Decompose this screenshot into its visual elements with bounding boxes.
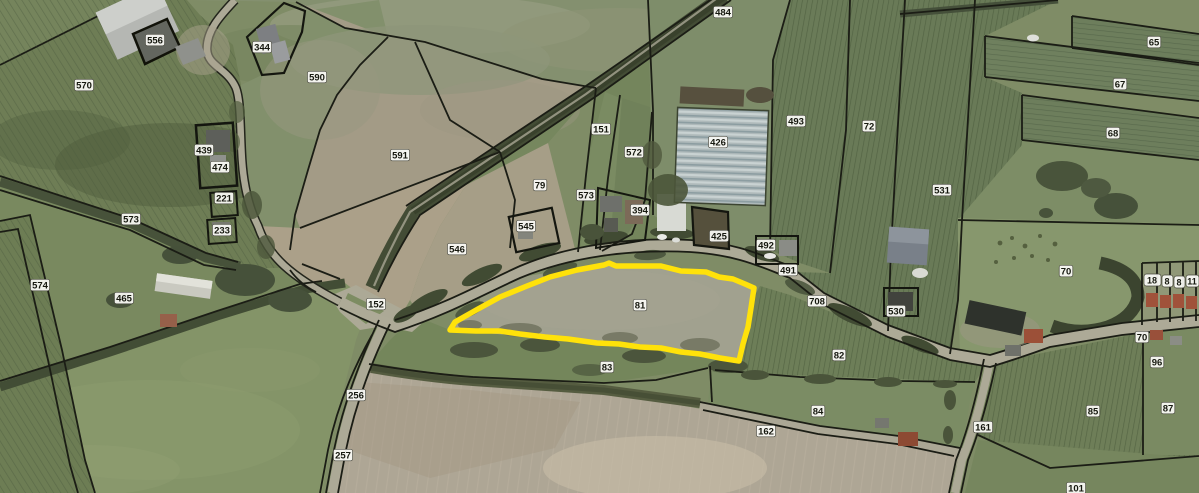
svg-text:465: 465 — [116, 294, 133, 305]
svg-text:101: 101 — [1068, 484, 1085, 493]
svg-text:474: 474 — [212, 163, 229, 174]
svg-text:545: 545 — [518, 222, 535, 233]
svg-text:591: 591 — [392, 151, 409, 162]
svg-text:161: 161 — [975, 423, 992, 434]
svg-text:84: 84 — [813, 407, 824, 418]
svg-text:574: 574 — [32, 281, 49, 292]
svg-text:8: 8 — [1164, 277, 1169, 287]
svg-text:70: 70 — [1137, 333, 1148, 344]
svg-text:152: 152 — [368, 300, 384, 311]
svg-text:85: 85 — [1088, 407, 1099, 418]
svg-text:96: 96 — [1152, 358, 1163, 369]
svg-text:573: 573 — [123, 215, 139, 226]
svg-text:530: 530 — [888, 307, 904, 318]
svg-text:72: 72 — [864, 122, 875, 133]
svg-text:570: 570 — [76, 81, 92, 92]
svg-text:491: 491 — [780, 266, 797, 277]
svg-text:531: 531 — [934, 186, 951, 197]
svg-text:8: 8 — [1176, 278, 1181, 288]
svg-text:79: 79 — [535, 181, 546, 192]
svg-text:590: 590 — [309, 73, 325, 84]
svg-text:344: 344 — [254, 43, 271, 54]
svg-text:81: 81 — [635, 301, 646, 312]
svg-text:65: 65 — [1149, 38, 1160, 49]
svg-text:83: 83 — [602, 363, 613, 374]
svg-text:82: 82 — [834, 351, 845, 362]
svg-text:572: 572 — [626, 148, 642, 159]
svg-text:484: 484 — [715, 8, 732, 19]
svg-text:151: 151 — [593, 125, 610, 136]
svg-text:68: 68 — [1108, 129, 1119, 140]
svg-text:67: 67 — [1115, 80, 1126, 91]
svg-text:546: 546 — [449, 245, 465, 256]
svg-text:87: 87 — [1163, 404, 1174, 415]
svg-text:70: 70 — [1061, 267, 1072, 278]
svg-text:257: 257 — [335, 451, 351, 462]
svg-text:425: 425 — [711, 232, 728, 243]
svg-text:439: 439 — [196, 146, 212, 157]
svg-text:556: 556 — [147, 36, 163, 47]
svg-text:394: 394 — [632, 206, 649, 217]
svg-text:426: 426 — [710, 138, 726, 149]
svg-text:221: 221 — [216, 194, 233, 205]
svg-text:162: 162 — [758, 427, 774, 438]
svg-text:573: 573 — [578, 191, 594, 202]
svg-text:708: 708 — [809, 297, 825, 308]
svg-text:493: 493 — [788, 117, 804, 128]
svg-text:233: 233 — [214, 226, 230, 237]
svg-text:492: 492 — [758, 241, 774, 252]
svg-text:256: 256 — [348, 391, 364, 402]
svg-text:18: 18 — [1147, 276, 1157, 286]
svg-text:11: 11 — [1187, 277, 1197, 287]
